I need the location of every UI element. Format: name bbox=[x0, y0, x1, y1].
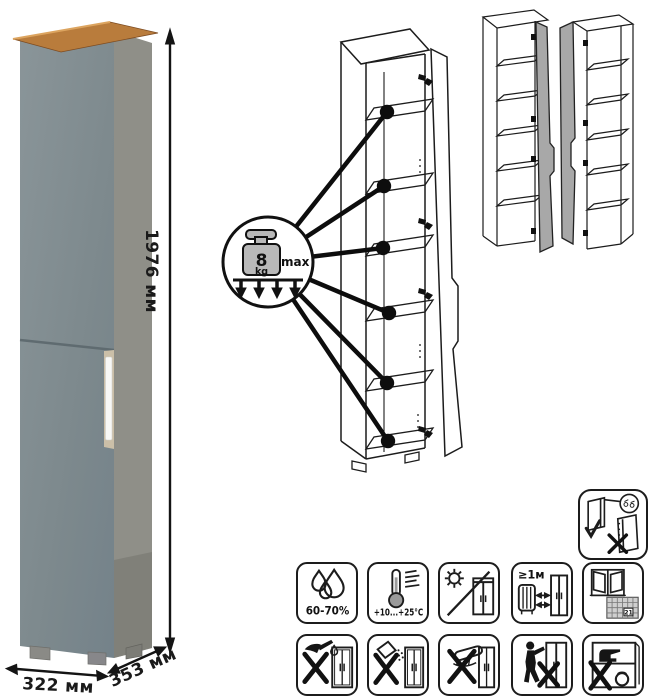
door-mounting-icon bbox=[578, 489, 648, 560]
no-direct-sunlight-icon bbox=[438, 562, 500, 624]
wardrobe-glyph bbox=[473, 578, 493, 614]
heat-lines bbox=[405, 570, 419, 586]
shelf-markers bbox=[376, 105, 396, 448]
humidity-icon: 60-70% bbox=[296, 562, 358, 624]
heat-distance-icon: ≥1м bbox=[511, 562, 573, 624]
foot-front-right bbox=[88, 652, 106, 665]
no-dragging-icon bbox=[511, 634, 573, 696]
person-glyph bbox=[524, 641, 545, 682]
temperature-icon: +10...+25°C bbox=[367, 562, 429, 624]
thermometer-bulb bbox=[389, 593, 403, 607]
no-overloading-icon bbox=[582, 634, 644, 696]
powder-box bbox=[377, 641, 395, 657]
humidity-label: 60-70% bbox=[305, 603, 349, 617]
shelves bbox=[366, 99, 433, 449]
door-handle bbox=[106, 357, 113, 440]
cabinet-body bbox=[13, 22, 158, 665]
wardrobe-glyph bbox=[405, 647, 423, 687]
shelf-1 bbox=[366, 99, 433, 120]
temperature-label: +10...+25°C bbox=[373, 607, 422, 618]
x-mark bbox=[539, 663, 557, 685]
calendar-glyph: 21 bbox=[606, 597, 637, 618]
tech-drawing: 8 kg max bbox=[215, 5, 485, 500]
x-mark bbox=[375, 655, 396, 683]
carcass-bottom-edge bbox=[366, 448, 425, 459]
wardrobe-glyph bbox=[332, 647, 352, 687]
kettlebell-glyph bbox=[615, 672, 627, 685]
height-arrow-head-top bbox=[166, 29, 175, 44]
weight-icon: 8 kg bbox=[243, 230, 280, 278]
wardrobe-glyph bbox=[551, 575, 567, 615]
no-wet-rubbing-icon bbox=[438, 634, 500, 696]
cabinet-photo bbox=[0, 0, 210, 700]
shelf-4 bbox=[366, 300, 433, 321]
ventilation-calendar-icon: 21 bbox=[582, 562, 644, 624]
x-mark bbox=[304, 654, 326, 682]
x-mark bbox=[590, 662, 609, 688]
shelf-3 bbox=[366, 235, 433, 256]
variant-left-door bbox=[536, 22, 554, 252]
no-abrasive-powder-icon bbox=[367, 634, 429, 696]
door-variants-drawing bbox=[475, 5, 648, 255]
cabinet-side-shade bbox=[114, 552, 152, 658]
max-label: max bbox=[281, 255, 310, 269]
carcass-top bbox=[341, 29, 429, 64]
calendar-day: 21 bbox=[624, 609, 633, 616]
sun-glyph bbox=[444, 568, 463, 587]
screw-detail-magnifier bbox=[620, 494, 638, 512]
product-sheet: 1976 мм 322 мм 353 мм bbox=[0, 0, 648, 700]
radiator-glyph bbox=[518, 584, 534, 613]
open-door bbox=[431, 49, 462, 456]
distance-label: ≥1м bbox=[517, 567, 544, 581]
open-window-glyph bbox=[589, 569, 625, 595]
variant-right-door bbox=[560, 22, 575, 244]
no-sharp-tools-icon bbox=[296, 634, 358, 696]
variant-right-carcass bbox=[573, 15, 633, 249]
distance-arrows bbox=[536, 593, 548, 607]
water-drop-small bbox=[312, 570, 325, 590]
weight-unit: kg bbox=[255, 267, 268, 278]
foot-front-left bbox=[30, 646, 50, 660]
anvil-glyph bbox=[599, 649, 620, 661]
carcass-bottom-left bbox=[341, 441, 366, 459]
carcass-top-inner-edge bbox=[366, 54, 425, 63]
dimension-height-label: 1976 мм bbox=[141, 219, 161, 323]
x-mark bbox=[449, 651, 474, 681]
